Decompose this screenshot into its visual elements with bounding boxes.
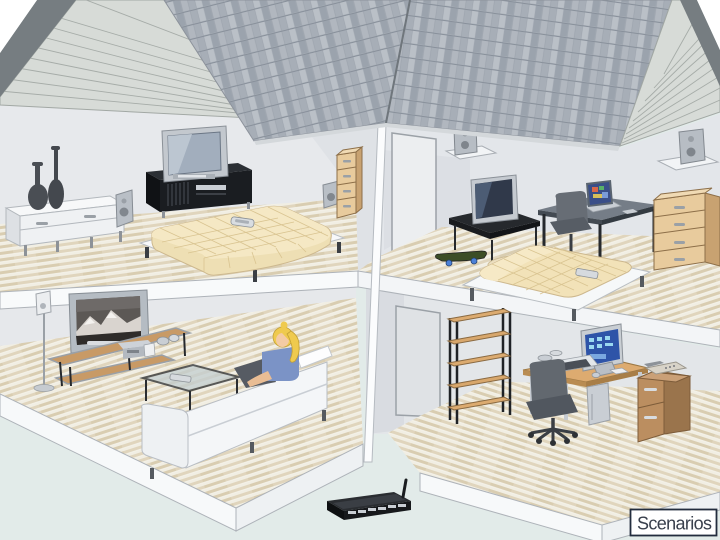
svg-text:Scenarios: Scenarios [637,514,712,534]
